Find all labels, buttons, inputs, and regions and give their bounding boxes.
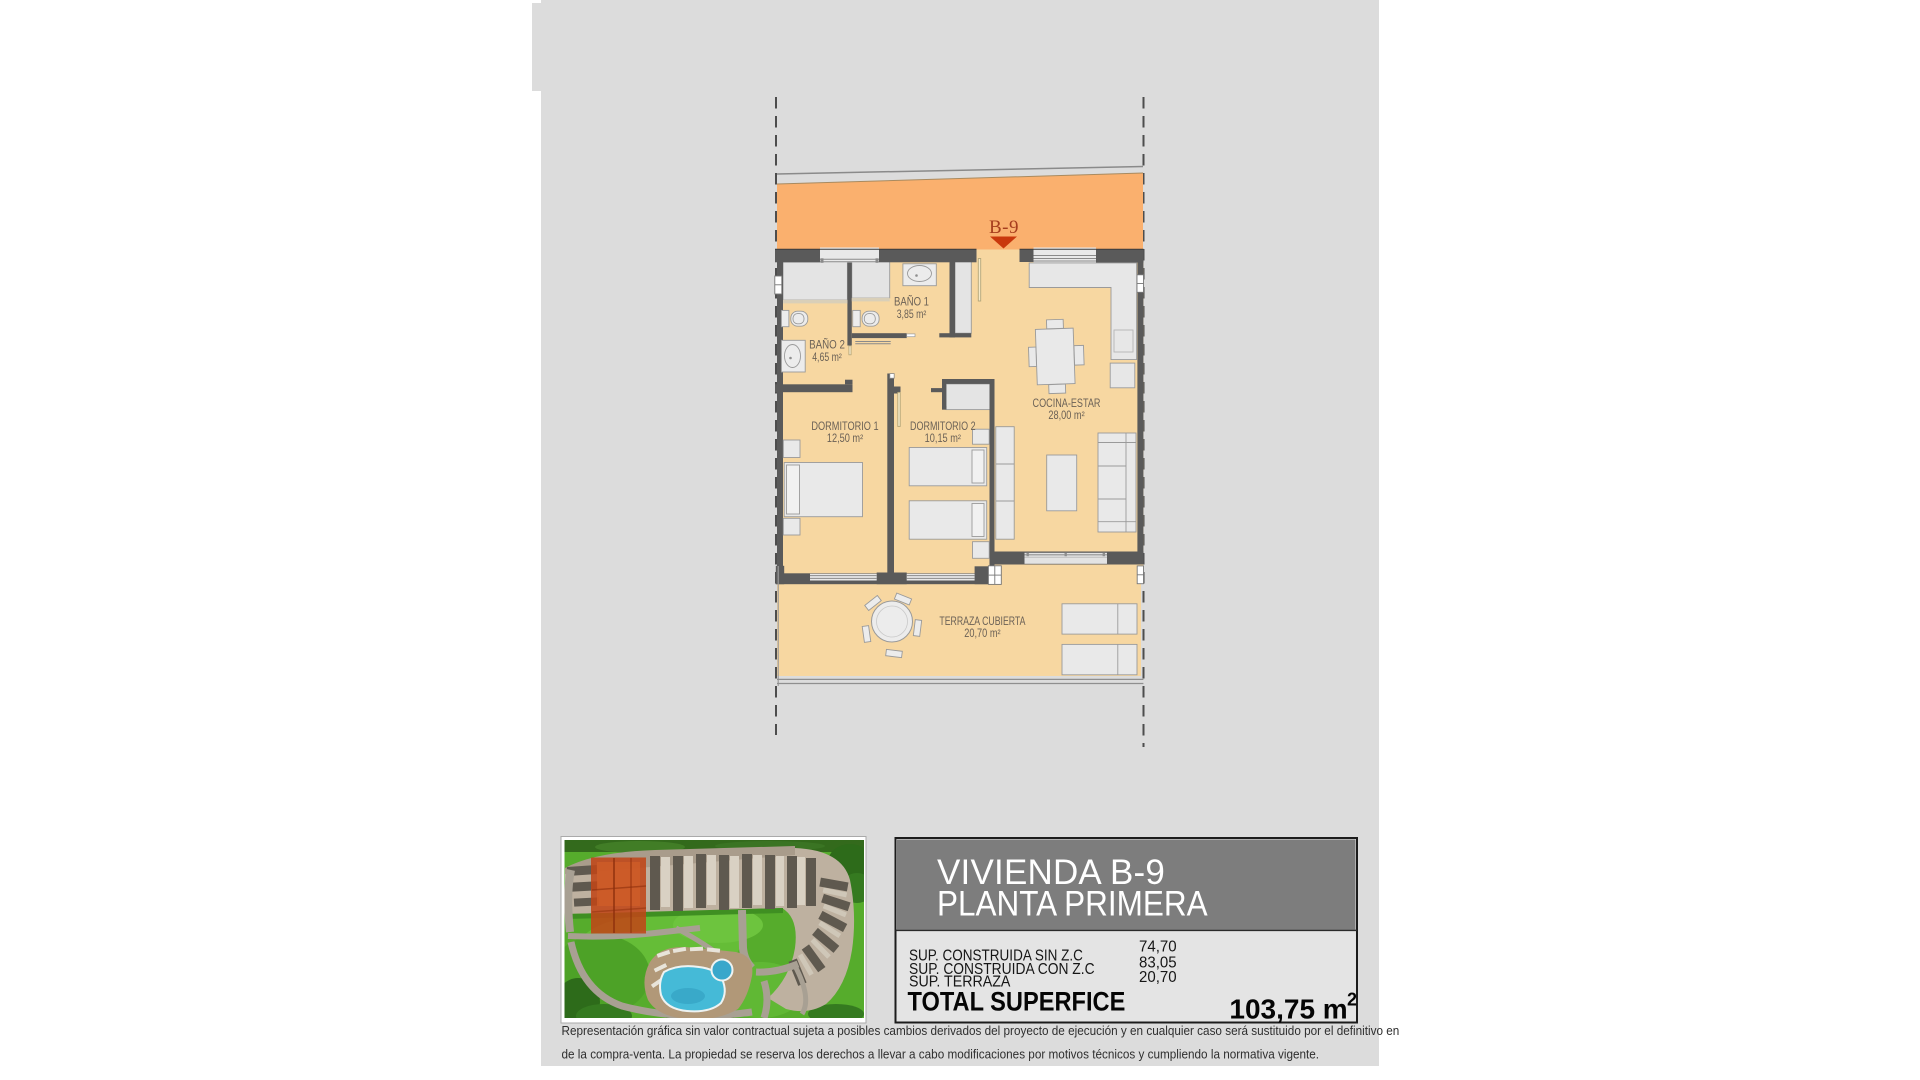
svg-text:PLANTA PRIMERA: PLANTA PRIMERA [937,885,1208,924]
svg-text:2: 2 [1347,990,1357,1010]
svg-text:BAÑO 1: BAÑO 1 [894,295,929,309]
svg-text:4,65 m²: 4,65 m² [812,352,842,364]
svg-text:BAÑO 2: BAÑO 2 [809,338,845,352]
svg-text:20,70: 20,70 [1139,969,1177,987]
svg-text:20,70 m²: 20,70 m² [964,628,1001,640]
svg-text:12,50 m²: 12,50 m² [827,433,864,445]
svg-text:DORMITORIO 2: DORMITORIO 2 [910,421,976,433]
svg-text:de la compra-venta. La propied: de la compra-venta. La propiedad se rese… [562,1047,1320,1062]
svg-text:TOTAL SUPERFICE: TOTAL SUPERFICE [908,987,1126,1017]
svg-text:3,85 m²: 3,85 m² [897,309,927,321]
svg-text:103,75 m: 103,75 m [1229,994,1347,1025]
svg-text:10,15 m²: 10,15 m² [925,433,962,445]
svg-text:Representación gráfica sin val: Representación gráfica sin valor contrac… [562,1023,1400,1038]
svg-text:DORMITORIO 1: DORMITORIO 1 [811,421,878,433]
svg-text:28,00 m²: 28,00 m² [1048,410,1085,422]
svg-text:TERRAZA CUBIERTA: TERRAZA CUBIERTA [939,616,1025,628]
svg-text:74,70: 74,70 [1139,938,1177,956]
svg-text:B-9: B-9 [989,217,1019,238]
svg-text:COCINA-ESTAR: COCINA-ESTAR [1033,398,1101,410]
